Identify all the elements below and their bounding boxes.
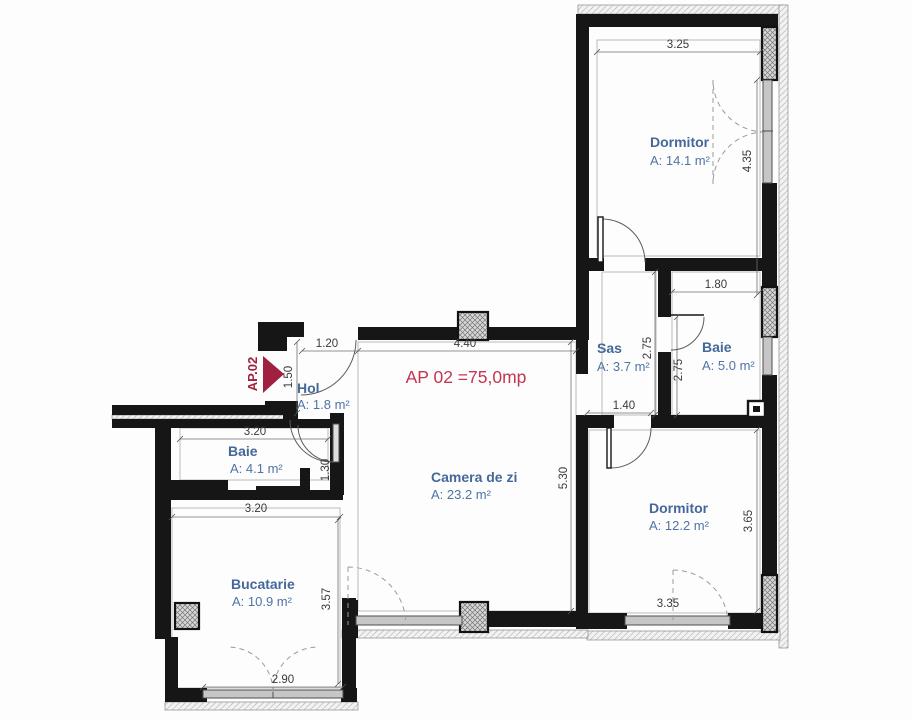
- dim-baie2-width: 1.80: [705, 279, 727, 291]
- dim-dorm1-width: 3.25: [667, 39, 689, 51]
- room-area-bucatarie: A: 10.9 m²: [232, 594, 293, 609]
- dim-dorm2-width: 3.35: [657, 598, 679, 610]
- window-baie1-interior: [333, 424, 339, 462]
- dim-bucatarie-window: 2.90: [272, 674, 294, 686]
- dim-bucatarie-width: 3.20: [245, 503, 267, 515]
- column-icon: [460, 602, 488, 632]
- dim-entry-width: 1.20: [316, 338, 338, 350]
- shaft-box: [748, 401, 765, 417]
- floor-plan-page: 3.25 4.35 1.80 2.75 2.75 1.40 5.30 3.65 …: [0, 0, 912, 720]
- door-arc-dormitor2: [611, 428, 651, 468]
- dim-dorm2-door: 1.40: [613, 400, 635, 412]
- room-area-camera: A: 23.2 m²: [431, 487, 492, 502]
- dashed-arc-dormitor2: [673, 570, 728, 620]
- entrance-marker-label: AP.02: [245, 357, 260, 391]
- column-icon: [458, 312, 488, 340]
- apartment-title: AP 02 =75,0mp: [406, 367, 527, 387]
- dim-bucatarie-height: 3.57: [321, 588, 333, 610]
- window-dormitor2: [625, 616, 730, 625]
- room-label-dormitor1: Dormitor: [650, 134, 710, 150]
- room-area-sas: A: 3.7 m²: [597, 359, 650, 374]
- room-label-camera: Camera de zi: [431, 469, 517, 485]
- dim-hol-height: 1.50: [283, 366, 295, 388]
- column-icon: [762, 575, 777, 632]
- window-camera: [356, 616, 462, 625]
- room-label-dormitor2: Dormitor: [649, 500, 709, 516]
- column-icon: [175, 603, 199, 629]
- dim-hol-wall: 1.30: [320, 459, 332, 481]
- room-label-baie2: Baie: [702, 339, 732, 355]
- dim-sas-height: 2.75: [642, 337, 654, 359]
- floor-plan-svg: 3.25 4.35 1.80 2.75 2.75 1.40 5.30 3.65 …: [0, 0, 912, 720]
- window-baie2: [763, 337, 772, 375]
- door-arc-baie2: [671, 317, 704, 350]
- room-label-hol: Hol: [297, 380, 320, 396]
- room-area-dormitor2: A: 12.2 m²: [649, 518, 710, 533]
- room-area-baie2: A: 5.0 m²: [702, 358, 755, 373]
- room-area-baie1: A: 4.1 m²: [230, 461, 283, 476]
- dim-dorm2-height: 3.65: [743, 510, 755, 532]
- door-arc-baie1: [298, 425, 335, 462]
- entrance-marker: AP.02: [245, 356, 284, 393]
- outer-insulation-bands: [112, 5, 788, 710]
- dim-camera-width: 4.40: [454, 338, 476, 350]
- room-area-dormitor1: A: 14.1 m²: [650, 153, 711, 168]
- dim-camera-height: 5.30: [558, 467, 570, 489]
- room-label-bucatarie: Bucatarie: [231, 576, 295, 592]
- dim-baie2-height: 2.75: [673, 359, 685, 381]
- room-area-hol: A: 1.8 m²: [297, 397, 350, 412]
- dim-baie1-width: 3.20: [244, 426, 266, 438]
- room-label-sas: Sas: [597, 340, 622, 356]
- column-icon: [762, 287, 777, 337]
- entrance-arrow-icon: [263, 356, 284, 393]
- dim-dorm1-height: 4.35: [742, 150, 754, 172]
- column-icon: [762, 27, 777, 80]
- dashed-arc-bucatarie-a: [228, 647, 273, 692]
- room-label-baie1: Baie: [228, 443, 258, 459]
